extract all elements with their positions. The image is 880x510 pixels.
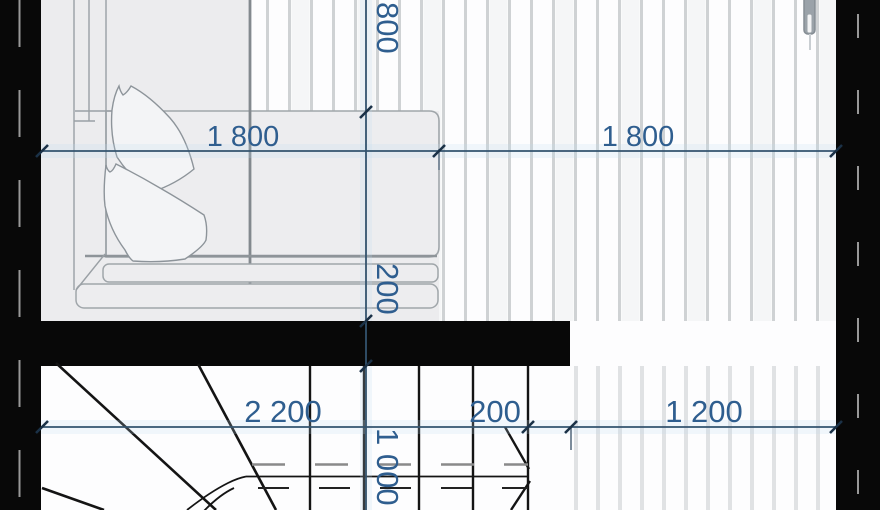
svg-text:200: 200 — [370, 263, 405, 315]
svg-text:200: 200 — [469, 394, 521, 429]
svg-text:1 800: 1 800 — [602, 121, 675, 153]
svg-text:1 000: 1 000 — [370, 428, 405, 506]
svg-text:1 800: 1 800 — [207, 121, 280, 153]
svg-text:800: 800 — [370, 2, 405, 54]
svg-text:2 200: 2 200 — [244, 394, 322, 429]
svg-text:1 200: 1 200 — [665, 394, 743, 429]
